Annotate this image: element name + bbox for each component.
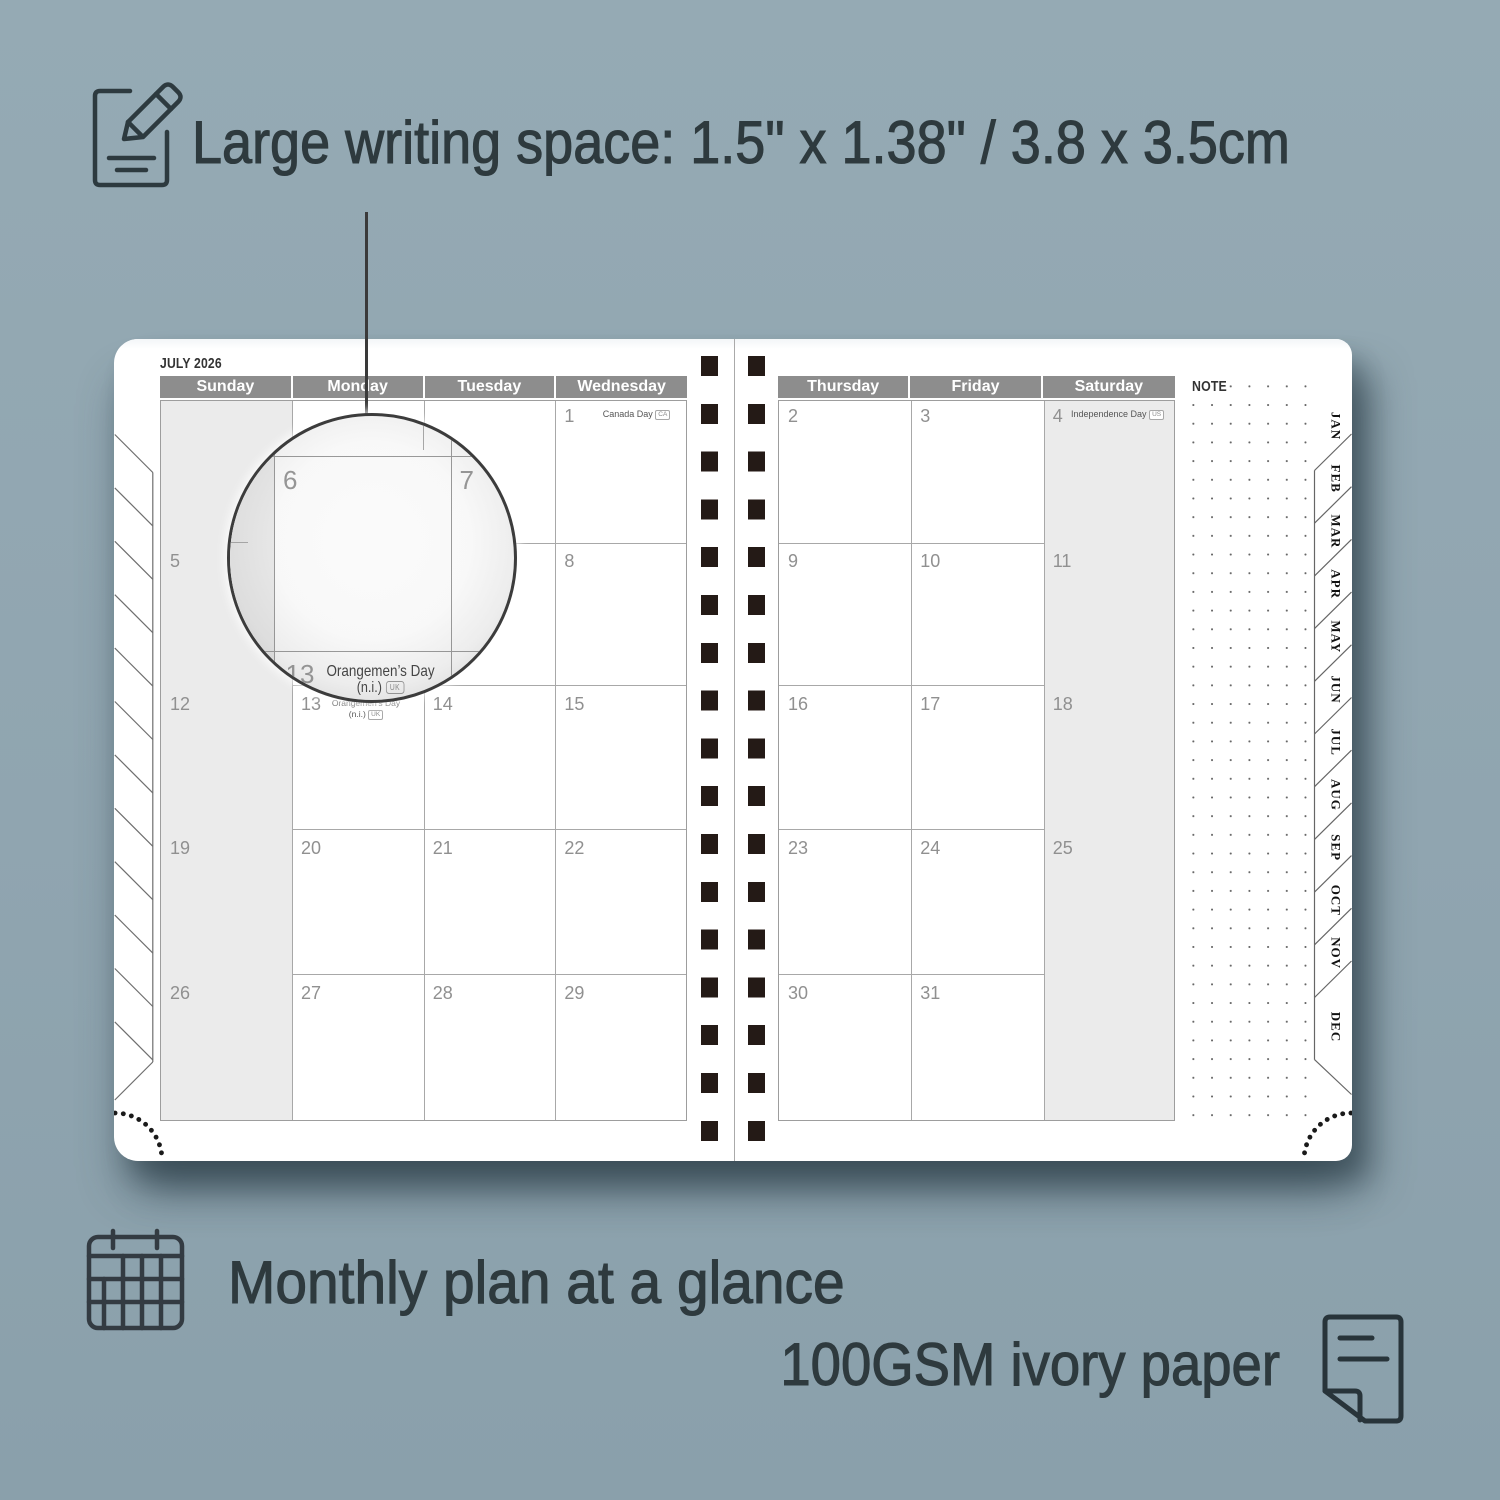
svg-text:NOV: NOV: [1329, 937, 1344, 969]
svg-text:SEP: SEP: [1329, 834, 1344, 861]
svg-text:OCT: OCT: [1329, 885, 1344, 916]
svg-text:AUG: AUG: [1329, 779, 1344, 811]
svg-text:MAY: MAY: [1329, 620, 1344, 653]
svg-text:FEB: FEB: [1329, 465, 1344, 493]
svg-text:DEC: DEC: [1329, 1012, 1344, 1042]
svg-text:MAR: MAR: [1329, 514, 1344, 548]
svg-text:JAN: JAN: [1329, 412, 1344, 440]
svg-text:JUL: JUL: [1329, 728, 1344, 756]
svg-text:APR: APR: [1329, 569, 1344, 599]
svg-text:JUN: JUN: [1329, 675, 1344, 703]
